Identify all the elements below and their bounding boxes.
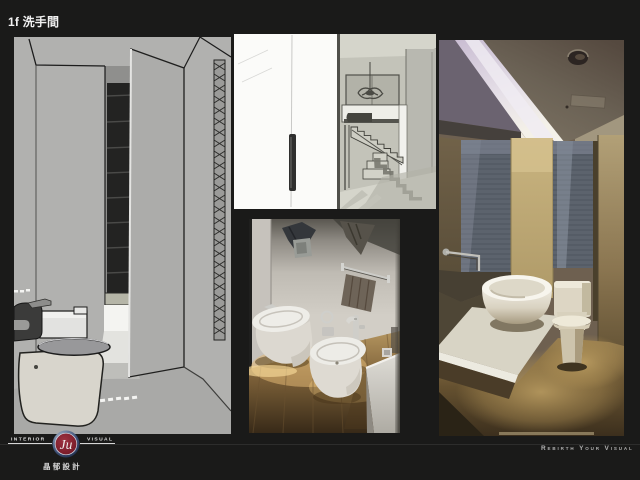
svg-text:Ju: Ju xyxy=(60,437,73,452)
